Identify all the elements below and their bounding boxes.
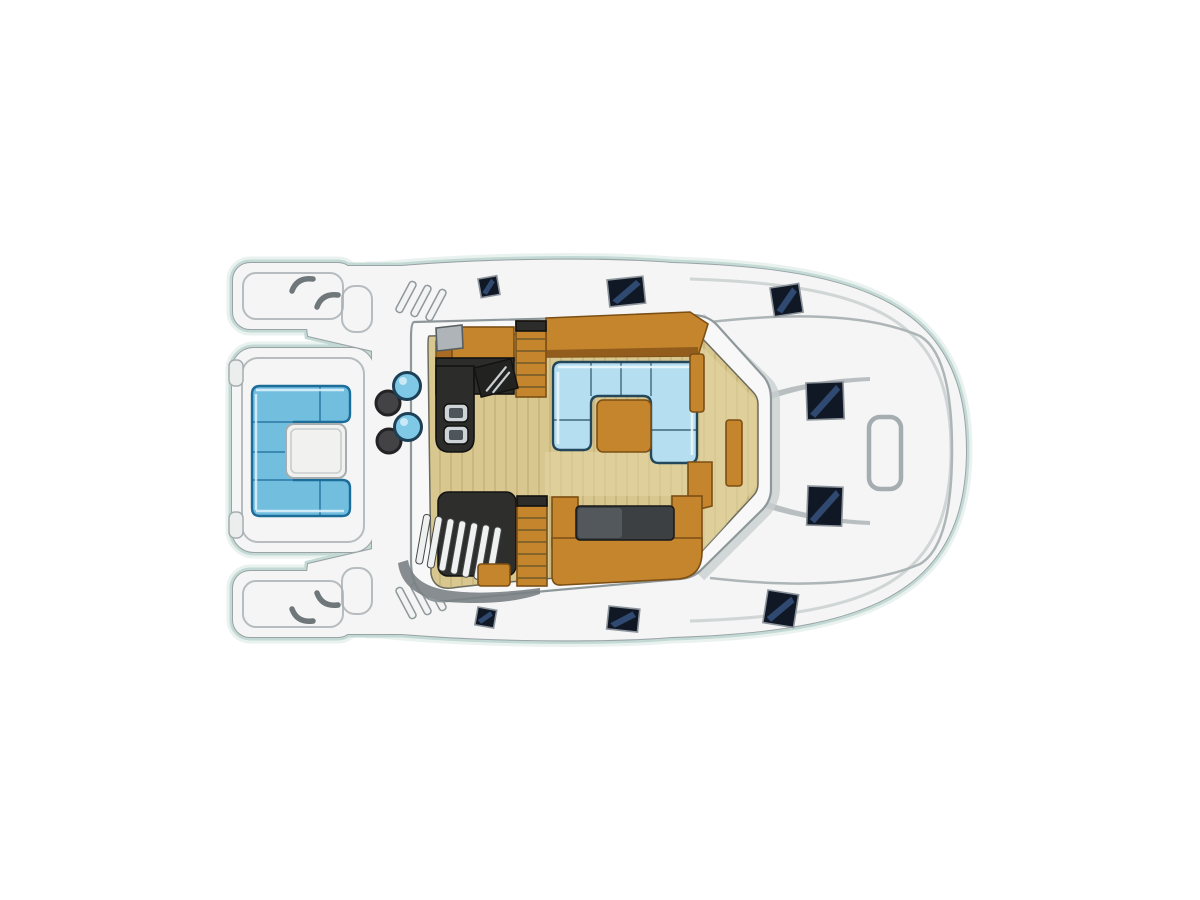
- hatch-top-small: [478, 276, 500, 298]
- stool-blue-2: [395, 414, 422, 441]
- stool-blue-1: [394, 373, 421, 400]
- aft-bench-cushion-highlight: [578, 508, 622, 538]
- companionway-steps: [516, 321, 546, 397]
- transom-handle: [869, 417, 901, 489]
- galley-sink-1: [444, 404, 468, 422]
- hatch-aft-lower: [807, 486, 843, 526]
- stool-blue-1-highlight: [399, 377, 407, 385]
- tv-unit: [436, 325, 463, 351]
- bow-step-tab-top: [229, 360, 243, 386]
- hatch-bottom-mid: [607, 606, 640, 632]
- starboard-trim: [690, 354, 704, 412]
- hatch-aft-upper: [806, 382, 844, 420]
- bow-step-tab-bottom: [229, 512, 243, 538]
- hatch-bottom-small: [475, 607, 497, 628]
- salon: [398, 312, 774, 603]
- hatch-bottom-right: [763, 590, 799, 627]
- yacht-deck-plan-image: [0, 0, 1200, 900]
- helm-console: [726, 420, 742, 486]
- aft-bench: [552, 496, 702, 585]
- salon-coffee-table: [597, 400, 651, 452]
- bow-table: [286, 424, 346, 478]
- hatch-top-mid: [607, 276, 646, 307]
- bow-seating: [252, 386, 350, 516]
- hatch-top-right: [770, 283, 803, 316]
- wood-landing: [478, 564, 510, 586]
- stool-blue-2-highlight: [400, 418, 408, 426]
- yacht-deck-plan-svg: [0, 0, 1200, 900]
- galley-sink-2: [444, 426, 468, 444]
